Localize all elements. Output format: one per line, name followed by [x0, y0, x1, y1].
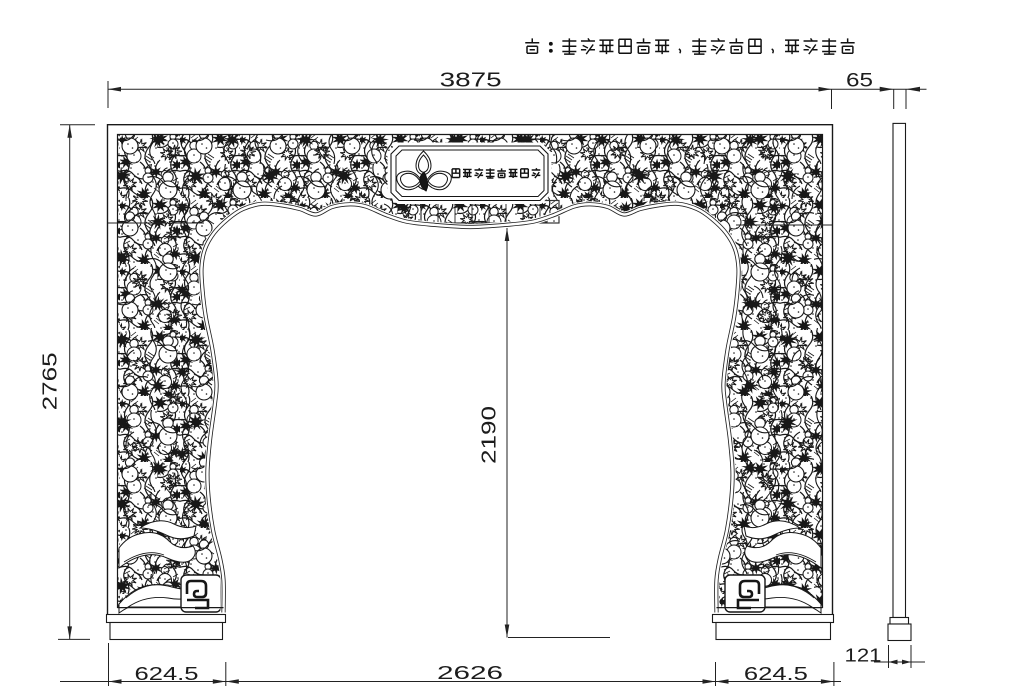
svg-text:2626: 2626 — [437, 663, 503, 683]
svg-text:65: 65 — [846, 71, 873, 92]
svg-text:624.5: 624.5 — [744, 664, 808, 684]
svg-text:121: 121 — [845, 646, 882, 666]
svg-text:3875: 3875 — [440, 70, 502, 92]
svg-text:624.5: 624.5 — [135, 664, 199, 684]
svg-text:2765: 2765 — [40, 352, 62, 410]
svg-text:2190: 2190 — [479, 406, 501, 464]
